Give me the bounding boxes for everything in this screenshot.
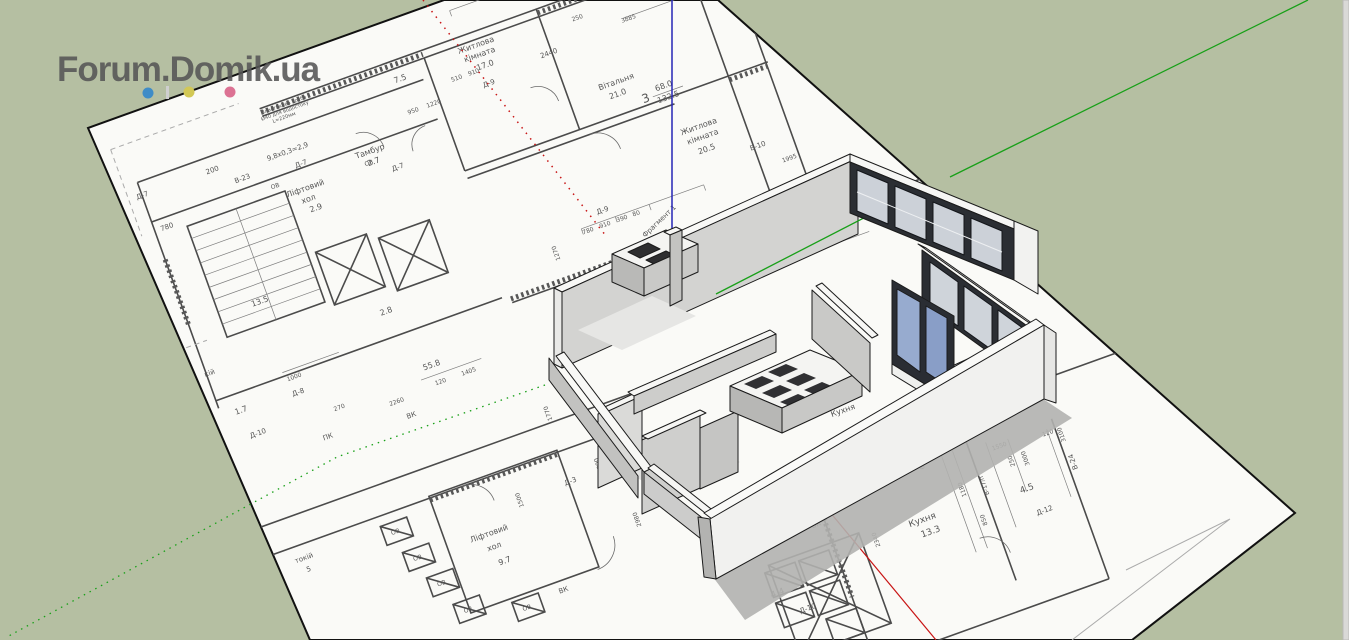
sketchup-viewport[interactable]: Житловакімната17.0Вітальня21.0368.0132.5… xyxy=(0,0,1349,640)
watermark-dot-blue xyxy=(143,88,154,99)
watermark-text: Forum.Domik.ua xyxy=(57,50,321,89)
watermark-dot-pink xyxy=(225,87,236,98)
scrollbar-strip[interactable] xyxy=(1343,0,1349,640)
watermark-divider xyxy=(166,86,169,99)
watermark-dot-yellow xyxy=(184,87,195,98)
